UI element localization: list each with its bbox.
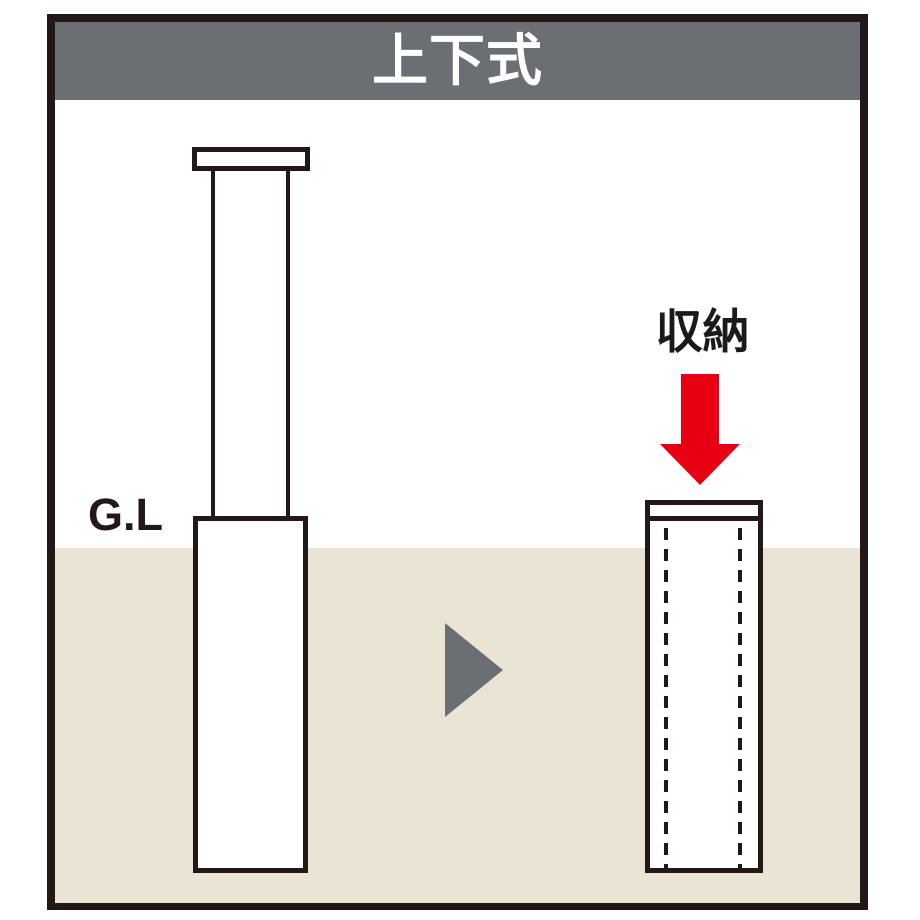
storage-label: 収納 — [640, 308, 765, 355]
down-arrow-head — [660, 444, 740, 485]
title-bar: 上下式 — [55, 22, 860, 100]
bollard-retracted-body-icon — [645, 500, 763, 873]
diagram-title: 上下式 — [372, 33, 543, 89]
bollard-retracted-cap-line — [650, 516, 758, 521]
hidden-post-dashed-line-right — [738, 528, 742, 868]
transition-arrow-icon — [445, 623, 503, 717]
bollard-cap-icon — [192, 147, 310, 171]
diagram-canvas: 上下式 G.L 収納 — [0, 0, 920, 920]
down-arrow-shaft — [681, 374, 719, 446]
ground-level-label: G.L — [88, 492, 163, 537]
bollard-post-icon — [211, 171, 290, 521]
bollard-sleeve-icon — [193, 516, 308, 873]
hidden-post-dashed-line-left — [664, 528, 668, 868]
